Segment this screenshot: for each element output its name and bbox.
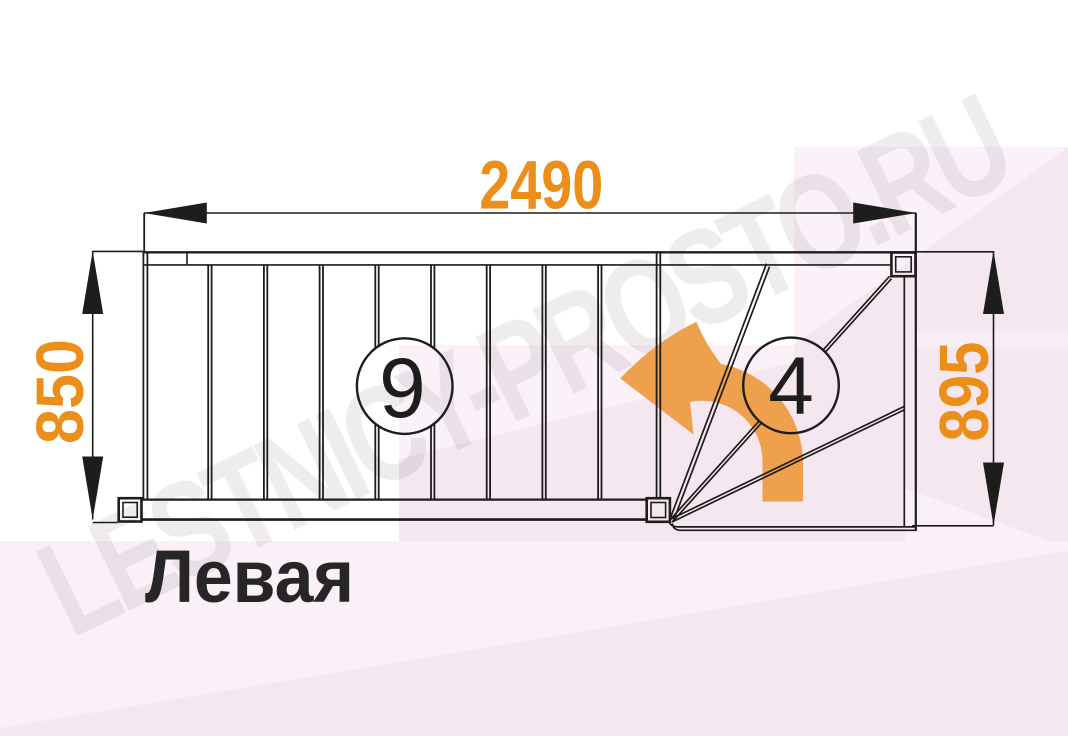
svg-text:895: 895 [925, 342, 1003, 442]
svg-text:9: 9 [379, 341, 426, 435]
svg-text:2490: 2490 [479, 146, 603, 223]
svg-text:Левая: Левая [145, 535, 354, 618]
svg-text:850: 850 [23, 339, 98, 444]
svg-text:4: 4 [768, 341, 814, 432]
